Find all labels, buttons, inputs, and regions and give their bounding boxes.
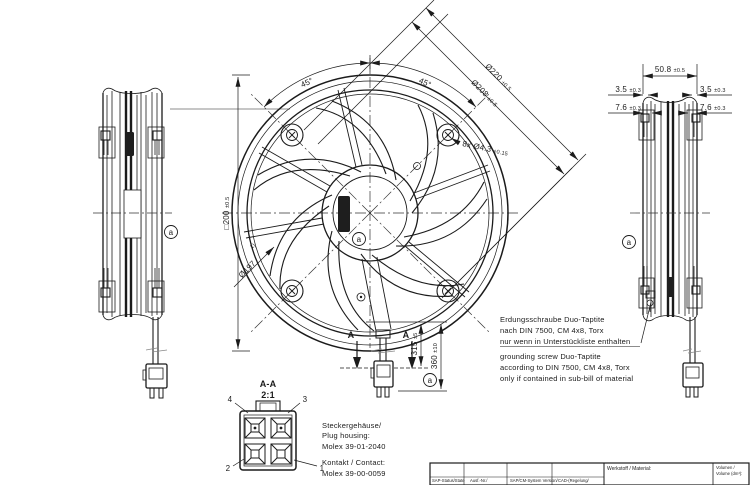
- grounding-screw-front: [357, 293, 365, 301]
- cable-front-view: [371, 330, 395, 397]
- note-plug-housing-1: Steckergehäuse/: [322, 421, 382, 430]
- titleblock-volume-2: Volume (dm³):: [716, 471, 742, 476]
- balloon-left: a: [165, 226, 178, 239]
- balloon-right: a: [623, 236, 636, 249]
- dim-dia208: Ø208 ±0.5: [469, 78, 500, 109]
- note-contact-1: Kontakt / Contact:: [322, 458, 385, 467]
- dim-flange-left: 3.5 ±0.3: [615, 85, 641, 94]
- section-mark-left: A: [348, 330, 355, 340]
- note-contact-2: Molex 39-00-0059: [322, 469, 386, 478]
- titleblock-material: Werkstoff / Material:: [607, 466, 651, 472]
- title-block: SAP-Status/State Ausf.-Nr./ SAP/CM-Syste…: [430, 463, 749, 485]
- section-scale: 2:1: [261, 390, 275, 400]
- note-grounding-de-1: Erdungsschraube Duo-Taptite: [500, 315, 605, 324]
- titleblock-ausf-nr: Ausf.-Nr./: [470, 478, 488, 483]
- note-plug-housing-3: Molex 39-01-2040: [322, 442, 386, 451]
- balloon-right-label: a: [627, 238, 632, 247]
- note-grounding-en-3: only if contained in sub-bill of materia…: [500, 374, 633, 383]
- motor-housing: [124, 190, 141, 238]
- balloon-front-label: a: [357, 235, 362, 244]
- cable-right-view: [683, 317, 703, 397]
- dim-315: 315 ±5: [410, 333, 419, 356]
- dim-width508: 50.8 ±0.5: [655, 65, 685, 74]
- connector-cavities: [245, 418, 291, 464]
- dim-flange-right: 3.5 ±0.3: [700, 85, 726, 94]
- titleblock-volume-1: Volumen /: [716, 465, 735, 470]
- dim-boss-right: 7.6 ±0.3: [700, 103, 726, 112]
- balloon-cable: a: [424, 374, 437, 387]
- section-mark-right: A: [403, 330, 410, 340]
- pin-4: 4: [228, 395, 233, 404]
- dim-holes: 8x Ø4.3 ±0.15: [462, 139, 509, 157]
- fan-technical-drawing: a: [0, 0, 750, 485]
- note-grounding-de-2: nach DIN 7500, CM 4x8, Torx: [500, 326, 604, 335]
- balloon-front: a: [353, 233, 366, 246]
- side-view-right: a: [623, 97, 711, 397]
- balloon-cable-label: a: [428, 376, 433, 385]
- drawing-svg: a: [0, 0, 750, 485]
- impeller-blades: [254, 101, 487, 331]
- note-grounding-en-1: grounding screw Duo-Taptite: [500, 352, 601, 361]
- pin-2: 2: [226, 464, 231, 473]
- label-sticker: [126, 132, 134, 156]
- dim-square200: □200 ±0.5: [222, 197, 231, 230]
- balloon-left-label: a: [169, 228, 174, 237]
- label-sticker: [667, 277, 674, 297]
- side-view-left: a: [93, 88, 178, 398]
- titleblock-cad: CAD-(Regelung/: [558, 478, 590, 483]
- support-struts: [244, 88, 490, 331]
- titleblock-sap-cm: SAP/CM-System Version/: [510, 478, 559, 483]
- dim-dia197-ref: 1): [249, 242, 257, 250]
- titleblock-sap-status: SAP-Status/State: [432, 478, 465, 483]
- section-title: A-A: [260, 379, 277, 389]
- pin-3: 3: [303, 395, 308, 404]
- cable-left-view: [143, 317, 167, 398]
- dim-angle-right: 45°: [417, 76, 432, 90]
- dim-dia220: Ø220 ±0.5: [483, 62, 514, 93]
- hub-label-sticker: [338, 196, 350, 232]
- note-grounding-en-2: according to DIN 7500, CM 4x8, Torx: [500, 363, 630, 372]
- connector-detail: A-A 2:1 4 3 2 1: [226, 379, 325, 473]
- dim-360: 360 ±10: [430, 343, 439, 369]
- note-grounding-de-3: nur wenn in Unterstückliste enthalten: [500, 337, 630, 346]
- dim-boss-left: 7.6 ±0.3: [615, 103, 641, 112]
- note-plug-housing-2: Plug housing:: [322, 431, 370, 440]
